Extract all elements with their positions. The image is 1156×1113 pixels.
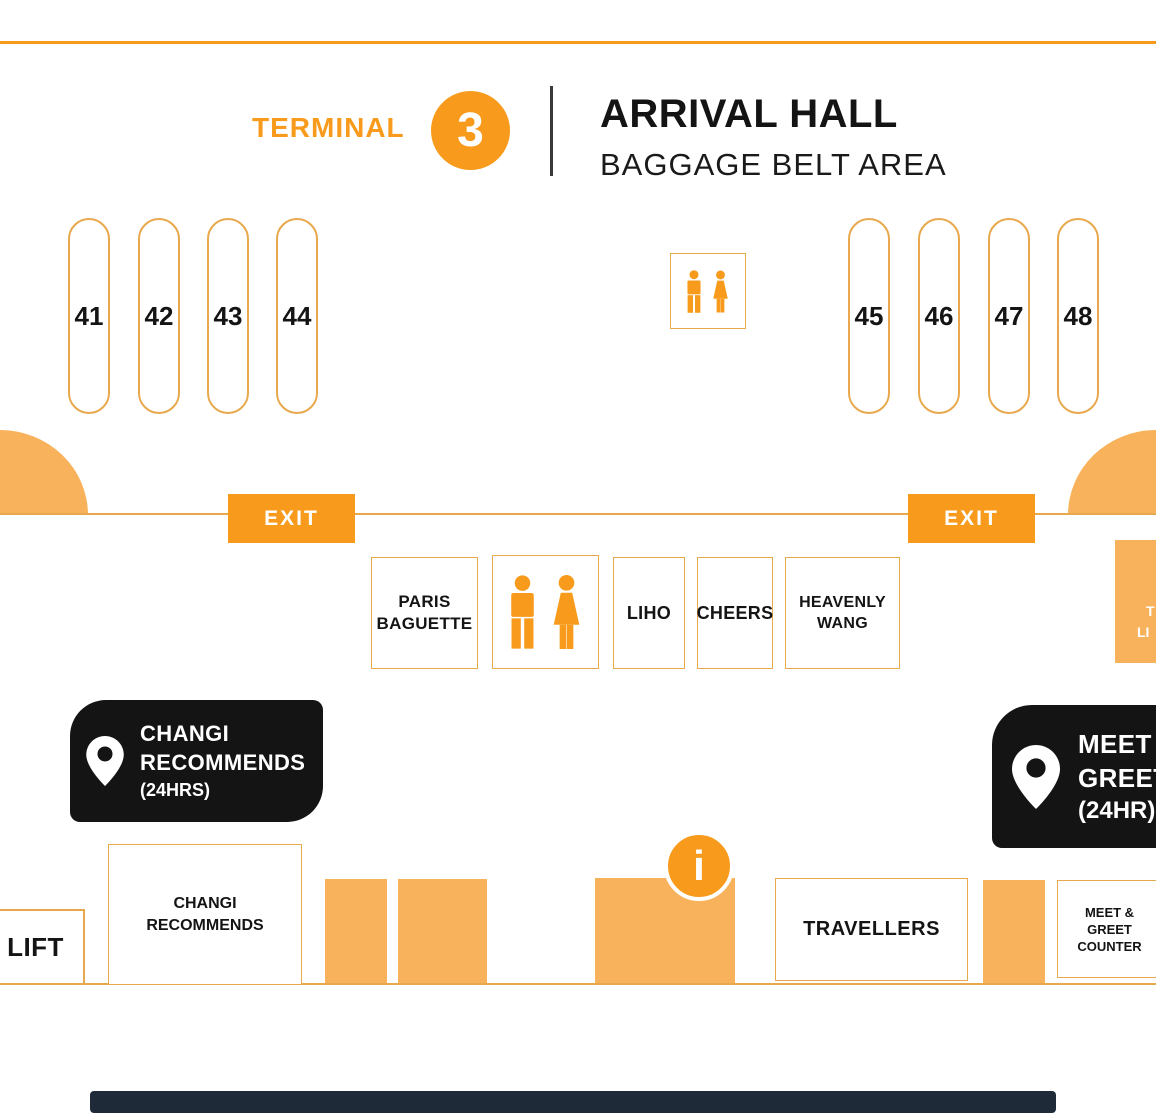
page-subtitle: BAGGAGE BELT AREA <box>600 147 947 183</box>
female-icon <box>548 575 585 649</box>
counter-label: GREET <box>1077 921 1141 938</box>
counter-block <box>983 880 1045 983</box>
shop-label: WANG <box>799 613 886 634</box>
counter-label: MEET & <box>1077 904 1141 921</box>
belt-number: 44 <box>283 301 312 332</box>
exit-sign-left: EXIT <box>228 494 355 543</box>
shop-heavenly-wang: HEAVENLY WANG <box>785 557 900 669</box>
terminal-number-icon: 3 <box>431 91 510 170</box>
shop-label: HEAVENLY <box>799 592 886 613</box>
counter-label: TRAVELLERS <box>803 918 940 941</box>
belt-number: 45 <box>855 301 884 332</box>
badge-hours: (24HRS) <box>140 777 305 804</box>
right-edge-label-fragment: LI <box>1137 624 1149 640</box>
male-icon <box>507 575 538 649</box>
toilet-box-lower <box>492 555 599 669</box>
badge-label: CHANGI <box>140 719 305 748</box>
lift-box: LIFT <box>0 909 85 985</box>
baggage-belt-44: 44 <box>276 218 318 414</box>
meet-greet-counter: MEET & GREET COUNTER <box>1057 880 1156 978</box>
counter-label: CHANGI <box>146 893 263 915</box>
shop-label: BAGUETTE <box>377 613 473 635</box>
baggage-belt-47: 47 <box>988 218 1030 414</box>
counter-label: RECOMMENDS <box>146 915 263 937</box>
terminal-number: 3 <box>457 103 484 158</box>
counter-block <box>325 879 387 983</box>
terminal-label: TERMINAL <box>252 112 405 144</box>
shop-label: PARIS <box>377 591 473 613</box>
belt-number: 46 <box>925 301 954 332</box>
shop-label: LIHO <box>627 602 671 624</box>
right-edge-label-fragment: T <box>1146 603 1155 619</box>
belt-number: 42 <box>145 301 174 332</box>
info-icon: i <box>664 831 734 901</box>
lift-label: LIFT <box>7 932 64 963</box>
male-icon <box>685 270 703 313</box>
page-title: ARRIVAL HALL <box>600 92 898 137</box>
shop-liho: LIHO <box>613 557 685 669</box>
shop-label: CHEERS <box>697 602 774 624</box>
location-pin-icon <box>1012 745 1060 809</box>
baggage-belt-46: 46 <box>918 218 960 414</box>
badge-label: MEET <box>1078 727 1156 761</box>
location-pin-icon <box>86 736 124 786</box>
info-glyph: i <box>693 845 705 887</box>
badge-label: RECOMMENDS <box>140 748 305 777</box>
travellers-counter: TRAVELLERS <box>775 878 968 981</box>
exit-label: EXIT <box>264 507 319 531</box>
exit-label: EXIT <box>944 507 999 531</box>
shop-cheers: CHEERS <box>697 557 773 669</box>
baggage-belt-48: 48 <box>1057 218 1099 414</box>
shop-paris-baguette: PARIS BAGUETTE <box>371 557 478 669</box>
belt-number: 43 <box>214 301 243 332</box>
top-divider-line <box>0 41 1156 44</box>
belt-number: 47 <box>995 301 1024 332</box>
changi-recommends-counter: CHANGI RECOMMENDS <box>108 844 302 985</box>
meet-greet-badge: MEET GREET (24HR) <box>992 705 1156 848</box>
badge-label: GREET <box>1078 761 1156 795</box>
wall-corner-left <box>0 430 88 515</box>
header-divider <box>550 86 553 176</box>
changi-recommends-badge: CHANGI RECOMMENDS (24HRS) <box>70 700 323 822</box>
bottom-bar <box>90 1091 1056 1113</box>
badge-hours: (24HR) <box>1078 795 1156 827</box>
toilet-box-upper <box>670 253 746 329</box>
belt-number: 48 <box>1064 301 1093 332</box>
wall-corner-right <box>1068 430 1156 515</box>
baggage-belt-45: 45 <box>848 218 890 414</box>
terminal-3-arrival-hall-map: TERMINAL 3 ARRIVAL HALL BAGGAGE BELT ARE… <box>0 0 1156 1113</box>
baggage-belt-43: 43 <box>207 218 249 414</box>
counter-block <box>398 879 487 983</box>
counter-label: COUNTER <box>1077 938 1141 955</box>
belt-number: 41 <box>75 301 104 332</box>
right-edge-orange-box <box>1115 540 1156 663</box>
exit-sign-right: EXIT <box>908 494 1035 543</box>
baggage-belt-42: 42 <box>138 218 180 414</box>
female-icon <box>710 270 731 313</box>
baggage-belt-41: 41 <box>68 218 110 414</box>
